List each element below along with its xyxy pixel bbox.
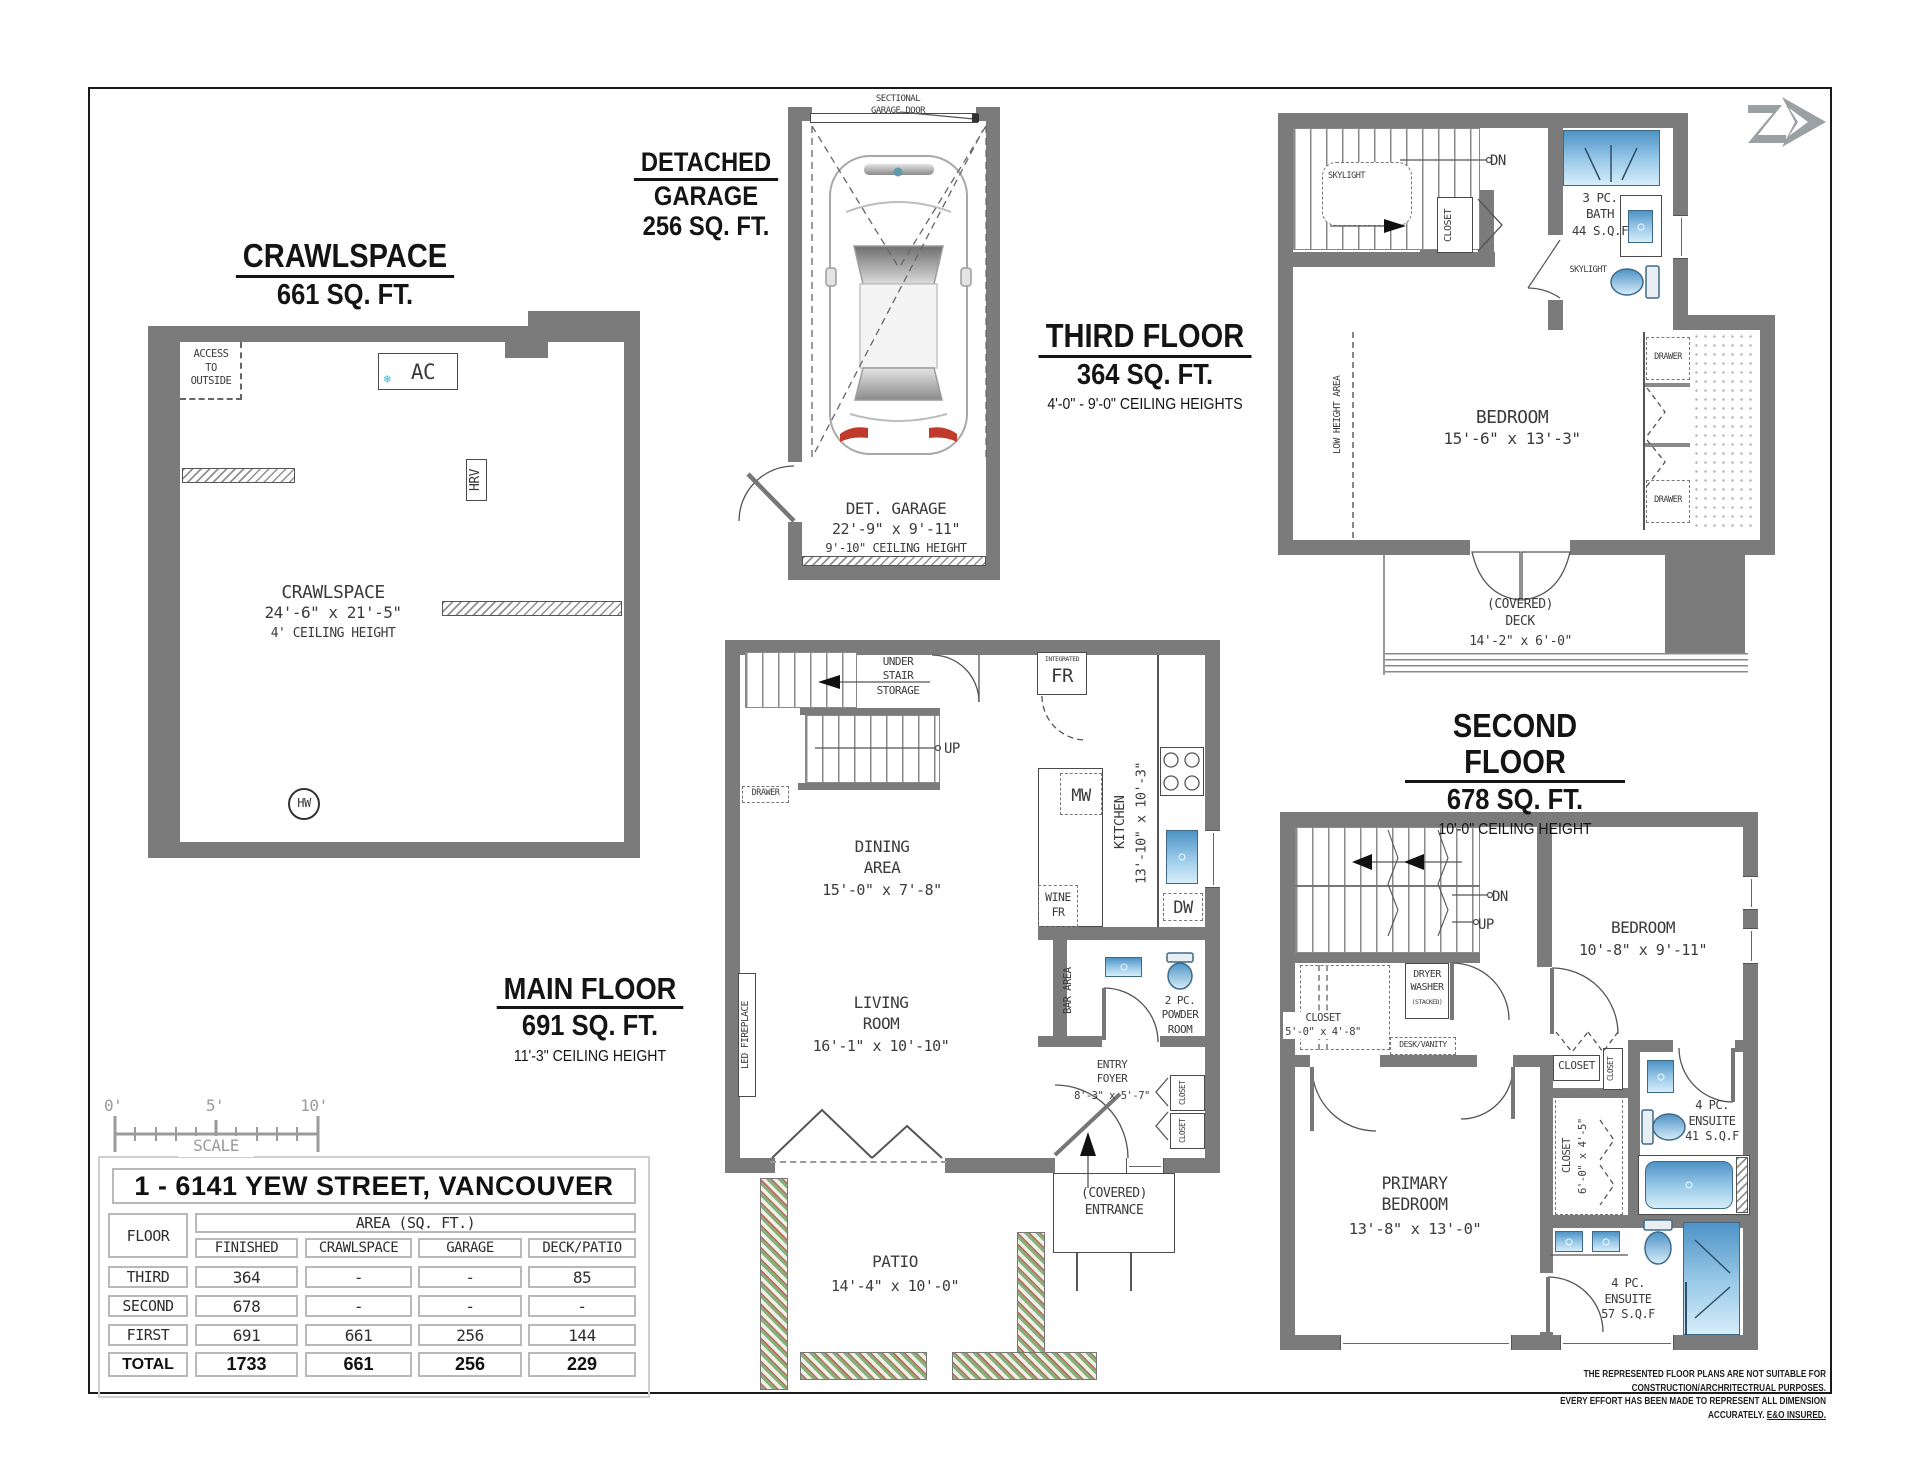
fridge-label: FR <box>1037 664 1087 689</box>
dining-dims: 15'-0" x 7'-8" <box>797 881 967 901</box>
stair-landing <box>1295 885 1480 887</box>
dishwasher-label: DW <box>1163 897 1203 919</box>
shower <box>1683 1222 1740 1335</box>
wall-segment <box>1548 300 1563 330</box>
skylight-label: SKYLIGHT <box>1556 265 1620 276</box>
wall-segment <box>800 708 940 715</box>
floor-header: FLOOR <box>108 1213 188 1258</box>
ensuite-label: 4 PC. ENSUITE 57 S.Q.F <box>1595 1276 1661 1323</box>
scale-zero: 0' <box>104 1096 134 1117</box>
deck-dims: 14'-2" x 6'-0" <box>1453 634 1588 651</box>
entry-dims: 8'-3" x 5'-7" <box>1067 1090 1157 1104</box>
wall-segment <box>505 342 548 358</box>
closet-label: CLOSET 6'-0" x 4'-5" <box>1560 1100 1594 1212</box>
patio-label: PATIO <box>845 1252 945 1273</box>
crawlspace-ceiling: 4' CEILING HEIGHT <box>233 626 433 643</box>
sink <box>1592 1231 1620 1252</box>
wall-segment <box>1205 640 1220 1173</box>
wall-segment <box>986 107 1000 580</box>
closet-label: CLOSET <box>1553 1059 1600 1073</box>
closet-label: CLOSET <box>1442 200 1468 250</box>
closet-label: CLOSET 5'-0" x 4'-8" <box>1283 1012 1363 1039</box>
low-height-line <box>1352 332 1354 538</box>
closet-label: CLOSET <box>1178 1077 1196 1109</box>
wine-fridge-label: WINE FR <box>1038 890 1078 920</box>
window <box>1205 830 1220 888</box>
garage-dims: 22'-9" x 9'-11" <box>811 520 981 540</box>
row-floor-total: TOTAL <box>108 1352 188 1377</box>
beam <box>182 468 295 483</box>
bedroom-label: BEDROOM <box>1583 918 1703 939</box>
up-label: UP <box>1478 916 1518 934</box>
crawlspace-title: CRAWLSPACE <box>236 238 454 278</box>
garage-ceiling: 9'-10" CEILING HEIGHT <box>816 541 976 557</box>
shelf <box>1645 383 1690 387</box>
row-deck: - <box>528 1295 636 1317</box>
primary-bedroom-label: PRIMARY BEDROOM <box>1352 1173 1477 1216</box>
main-title: MAIN FLOOR <box>497 972 684 1009</box>
entry-label: ENTRY FOYER <box>1077 1058 1147 1087</box>
third-area: 364 SQ. FT. <box>1035 358 1255 392</box>
row-deck-total: 229 <box>528 1352 636 1377</box>
wall-segment <box>148 326 180 858</box>
third-title-block: THIRD FLOOR 364 SQ. FT. 4'-0" - 9'-0" CE… <box>1035 318 1255 414</box>
patio-dims: 14'-4" x 10'-0" <box>807 1277 983 1297</box>
bath-label: 3 PC. BATH 44 S.Q.F <box>1558 190 1642 239</box>
floorplan-sheet: CRAWLSPACE 661 SQ. FT. DETACHED GARAGE 2… <box>0 0 1920 1484</box>
stove <box>1160 747 1204 796</box>
sink <box>1647 1060 1674 1093</box>
row-crawlspace: - <box>305 1295 412 1317</box>
drawer-label: DRAWER <box>742 788 789 799</box>
drawer-label: DRAWER <box>1646 495 1690 506</box>
brand-logo <box>1742 95 1828 149</box>
area-header: AREA (SQ. FT.) <box>195 1213 636 1233</box>
garage-title-block: DETACHED GARAGE 256 SQ. FT. <box>613 148 800 243</box>
main-ceiling: 11'-3" CEILING HEIGHT <box>480 1048 700 1066</box>
stacked-label: (STACKED) <box>1405 998 1449 1006</box>
dn-label: DN <box>1490 152 1530 170</box>
shelf <box>1645 443 1690 447</box>
crawlspace-room-label: CRAWLSPACE <box>233 581 433 604</box>
window <box>1743 928 1758 964</box>
eo-insured: E&O INSURED. <box>1767 1410 1826 1421</box>
row-floor: THIRD <box>108 1266 188 1288</box>
row-finished-total: 1733 <box>195 1352 298 1377</box>
primary-bedroom-dims: 13'-8" x 13'-0" <box>1330 1219 1500 1239</box>
scale-ten: 10' <box>294 1096 334 1117</box>
crawlspace-title-block: CRAWLSPACE 661 SQ. FT. <box>235 238 455 312</box>
garage-title2: GARAGE <box>613 181 800 211</box>
row-garage-total: 256 <box>418 1352 522 1377</box>
third-title: THIRD FLOOR <box>1039 318 1252 358</box>
garage-door-label: SECTIONAL GARAGE DOOR <box>858 94 938 117</box>
skylight-label: SKYLIGHT <box>1328 171 1398 182</box>
disclaimer: THE REPRESENTED FLOOR PLANS ARE NOT SUIT… <box>1509 1368 1826 1422</box>
scale-five: 5' <box>200 1096 230 1117</box>
bathtub <box>1645 1161 1733 1209</box>
bar-area-label: BAR AREA <box>1062 954 1078 1028</box>
ensuite-label: 4 PC. ENSUITE 41 S.Q.F <box>1680 1098 1744 1145</box>
wardrobe-front <box>1643 332 1645 530</box>
access-label: ACCESS TO OUTSIDE <box>181 348 241 389</box>
row-floor: FIRST <box>108 1324 188 1346</box>
col-crawlspace: CRAWLSPACE <box>305 1238 412 1258</box>
door-opening <box>1470 540 1570 555</box>
staircase <box>745 652 857 708</box>
fireplace-label: LED FIREPLACE <box>740 978 755 1093</box>
washer-dryer-label: DRYER WASHER <box>1405 968 1449 994</box>
row-finished: 678 <box>195 1295 298 1317</box>
wall-segment <box>1537 827 1552 967</box>
second-ceiling: 10'-0" CEILING HEIGHT <box>1405 821 1625 839</box>
row-garage: 256 <box>418 1324 522 1346</box>
sink <box>1555 1231 1583 1252</box>
tub-deck <box>1736 1157 1748 1213</box>
disclaimer-line1: THE REPRESENTED FLOOR PLANS ARE NOT SUIT… <box>1509 1368 1826 1395</box>
garage-sill <box>802 556 986 566</box>
closet-label: CLOSET <box>1606 1050 1621 1088</box>
deck-railing <box>1383 653 1748 675</box>
address-title: 1 - 6141 YEW STREET, VANCOUVER <box>112 1168 636 1204</box>
wall-segment <box>788 566 1000 580</box>
wall-segment <box>1380 1055 1477 1067</box>
up-label: UP <box>944 740 980 758</box>
col-finished: FINISHED <box>195 1238 298 1258</box>
step-edge <box>1076 1253 1078 1291</box>
scale-label: SCALE <box>178 1136 254 1157</box>
wall-segment <box>976 107 1000 121</box>
main-area: 691 SQ. FT. <box>480 1009 700 1043</box>
door-opening <box>788 462 802 522</box>
planter <box>1017 1232 1045 1364</box>
wall-segment <box>1280 1055 1310 1067</box>
window <box>1673 215 1688 259</box>
row-crawlspace-total: 661 <box>305 1352 412 1377</box>
integrated-label: INTEGRATED <box>1037 655 1087 663</box>
beam <box>442 601 622 616</box>
low-height-label: LOW HEIGHT AREA <box>1332 350 1348 480</box>
crawlspace-area: 661 SQ. FT. <box>235 278 455 312</box>
staircase <box>805 715 940 783</box>
entrance-label: (COVERED) ENTRANCE <box>1061 1186 1167 1220</box>
window <box>1340 1335 1512 1350</box>
wall-segment <box>1735 1040 1758 1052</box>
desk-vanity-label: DESK/VANITY <box>1390 1040 1456 1050</box>
dining-label: DINING AREA <box>822 837 942 879</box>
third-ceiling: 4'-0" - 9'-0" CEILING HEIGHTS <box>1035 396 1255 414</box>
living-dims: 16'-1" x 10'-10" <box>791 1037 971 1057</box>
wall-segment <box>1038 1036 1102 1047</box>
drawer-label: DRAWER <box>1646 352 1690 363</box>
understair-label: UNDER STAIR STORAGE <box>856 655 940 698</box>
main-title-block: MAIN FLOOR 691 SQ. FT. 11'-3" CEILING HE… <box>480 972 700 1066</box>
second-title: SECOND FLOOR <box>1405 708 1625 783</box>
microwave-label: MW <box>1060 785 1102 807</box>
planter <box>800 1352 927 1380</box>
row-garage: - <box>418 1295 522 1317</box>
second-area: 678 SQ. FT. <box>1405 783 1625 817</box>
step-edge <box>1130 1253 1132 1291</box>
row-finished: 691 <box>195 1324 298 1346</box>
wall-segment <box>945 1158 1055 1173</box>
staircase <box>1295 827 1480 953</box>
row-crawlspace: 661 <box>305 1324 412 1346</box>
row-crawlspace: - <box>305 1266 412 1288</box>
hrv-label: HRV <box>468 461 485 499</box>
kitchen-label: KITCHEN 13'-10" x 10'-3" <box>1110 745 1154 900</box>
col-garage: GARAGE <box>418 1238 522 1258</box>
patio-threshold <box>770 1161 947 1163</box>
wall-segment <box>1278 252 1495 267</box>
counter-edge <box>1157 655 1159 927</box>
col-deck: DECK/PATIO <box>528 1238 636 1258</box>
row-finished: 364 <box>195 1266 298 1288</box>
wall-segment <box>788 107 812 121</box>
snowflake-icon: ❄ <box>379 372 395 388</box>
deck-label: (COVERED) DECK <box>1460 597 1580 631</box>
garage-title1: DETACHED <box>634 148 778 181</box>
deck-edge <box>1383 555 1385 675</box>
wall-segment <box>725 1158 775 1173</box>
window <box>1743 876 1758 910</box>
wall-segment <box>1280 812 1295 1350</box>
window <box>1560 1335 1674 1350</box>
hw-label: HW <box>288 796 320 812</box>
wall-segment <box>1038 927 1220 940</box>
wall-segment <box>148 842 640 858</box>
wall-segment <box>798 783 940 790</box>
closet-label: CLOSET <box>1178 1115 1196 1147</box>
garage-area: 256 SQ. FT. <box>613 211 800 243</box>
wall-segment <box>1540 1332 1553 1350</box>
garage-room-label: DET. GARAGE <box>821 499 971 520</box>
attic-area <box>1692 332 1758 528</box>
wall-segment <box>1665 555 1745 655</box>
wall-segment <box>624 311 640 858</box>
row-deck: 85 <box>528 1266 636 1288</box>
door-sill <box>1126 1158 1164 1173</box>
wall-segment <box>1640 1040 1673 1052</box>
row-deck: 144 <box>528 1324 636 1346</box>
wall-segment <box>1478 190 1494 267</box>
shower <box>1563 130 1660 186</box>
row-floor: SECOND <box>108 1295 188 1317</box>
crawlspace-dims: 24'-6" x 21'-5" <box>213 603 453 624</box>
bedroom-dims: 15'-6" x 13'-3" <box>1417 429 1607 450</box>
living-label: LIVING ROOM <box>821 993 941 1035</box>
wall-segment <box>1278 113 1688 128</box>
wall-segment <box>148 326 548 342</box>
ac-label: AC <box>388 359 458 386</box>
planter <box>952 1352 1097 1380</box>
dn-label: DN <box>1492 888 1532 906</box>
second-title-block: SECOND FLOOR 678 SQ. FT. 10'-0" CEILING … <box>1405 708 1625 839</box>
bedroom-dims: 10'-8" x 9'-11" <box>1563 941 1723 961</box>
planter <box>760 1178 788 1390</box>
row-garage: - <box>418 1266 522 1288</box>
wall-segment <box>1760 315 1775 555</box>
bedroom-label: BEDROOM <box>1432 406 1592 429</box>
wall-segment <box>1278 113 1293 555</box>
disclaimer-line2: EVERY EFFORT HAS BEEN MADE TO REPRESENT … <box>1509 1395 1826 1422</box>
powder-label: 2 PC. POWDER ROOM <box>1150 994 1210 1037</box>
powder-sink <box>1105 957 1142 977</box>
wall-segment <box>1160 1036 1205 1047</box>
kitchen-sink <box>1166 830 1198 884</box>
